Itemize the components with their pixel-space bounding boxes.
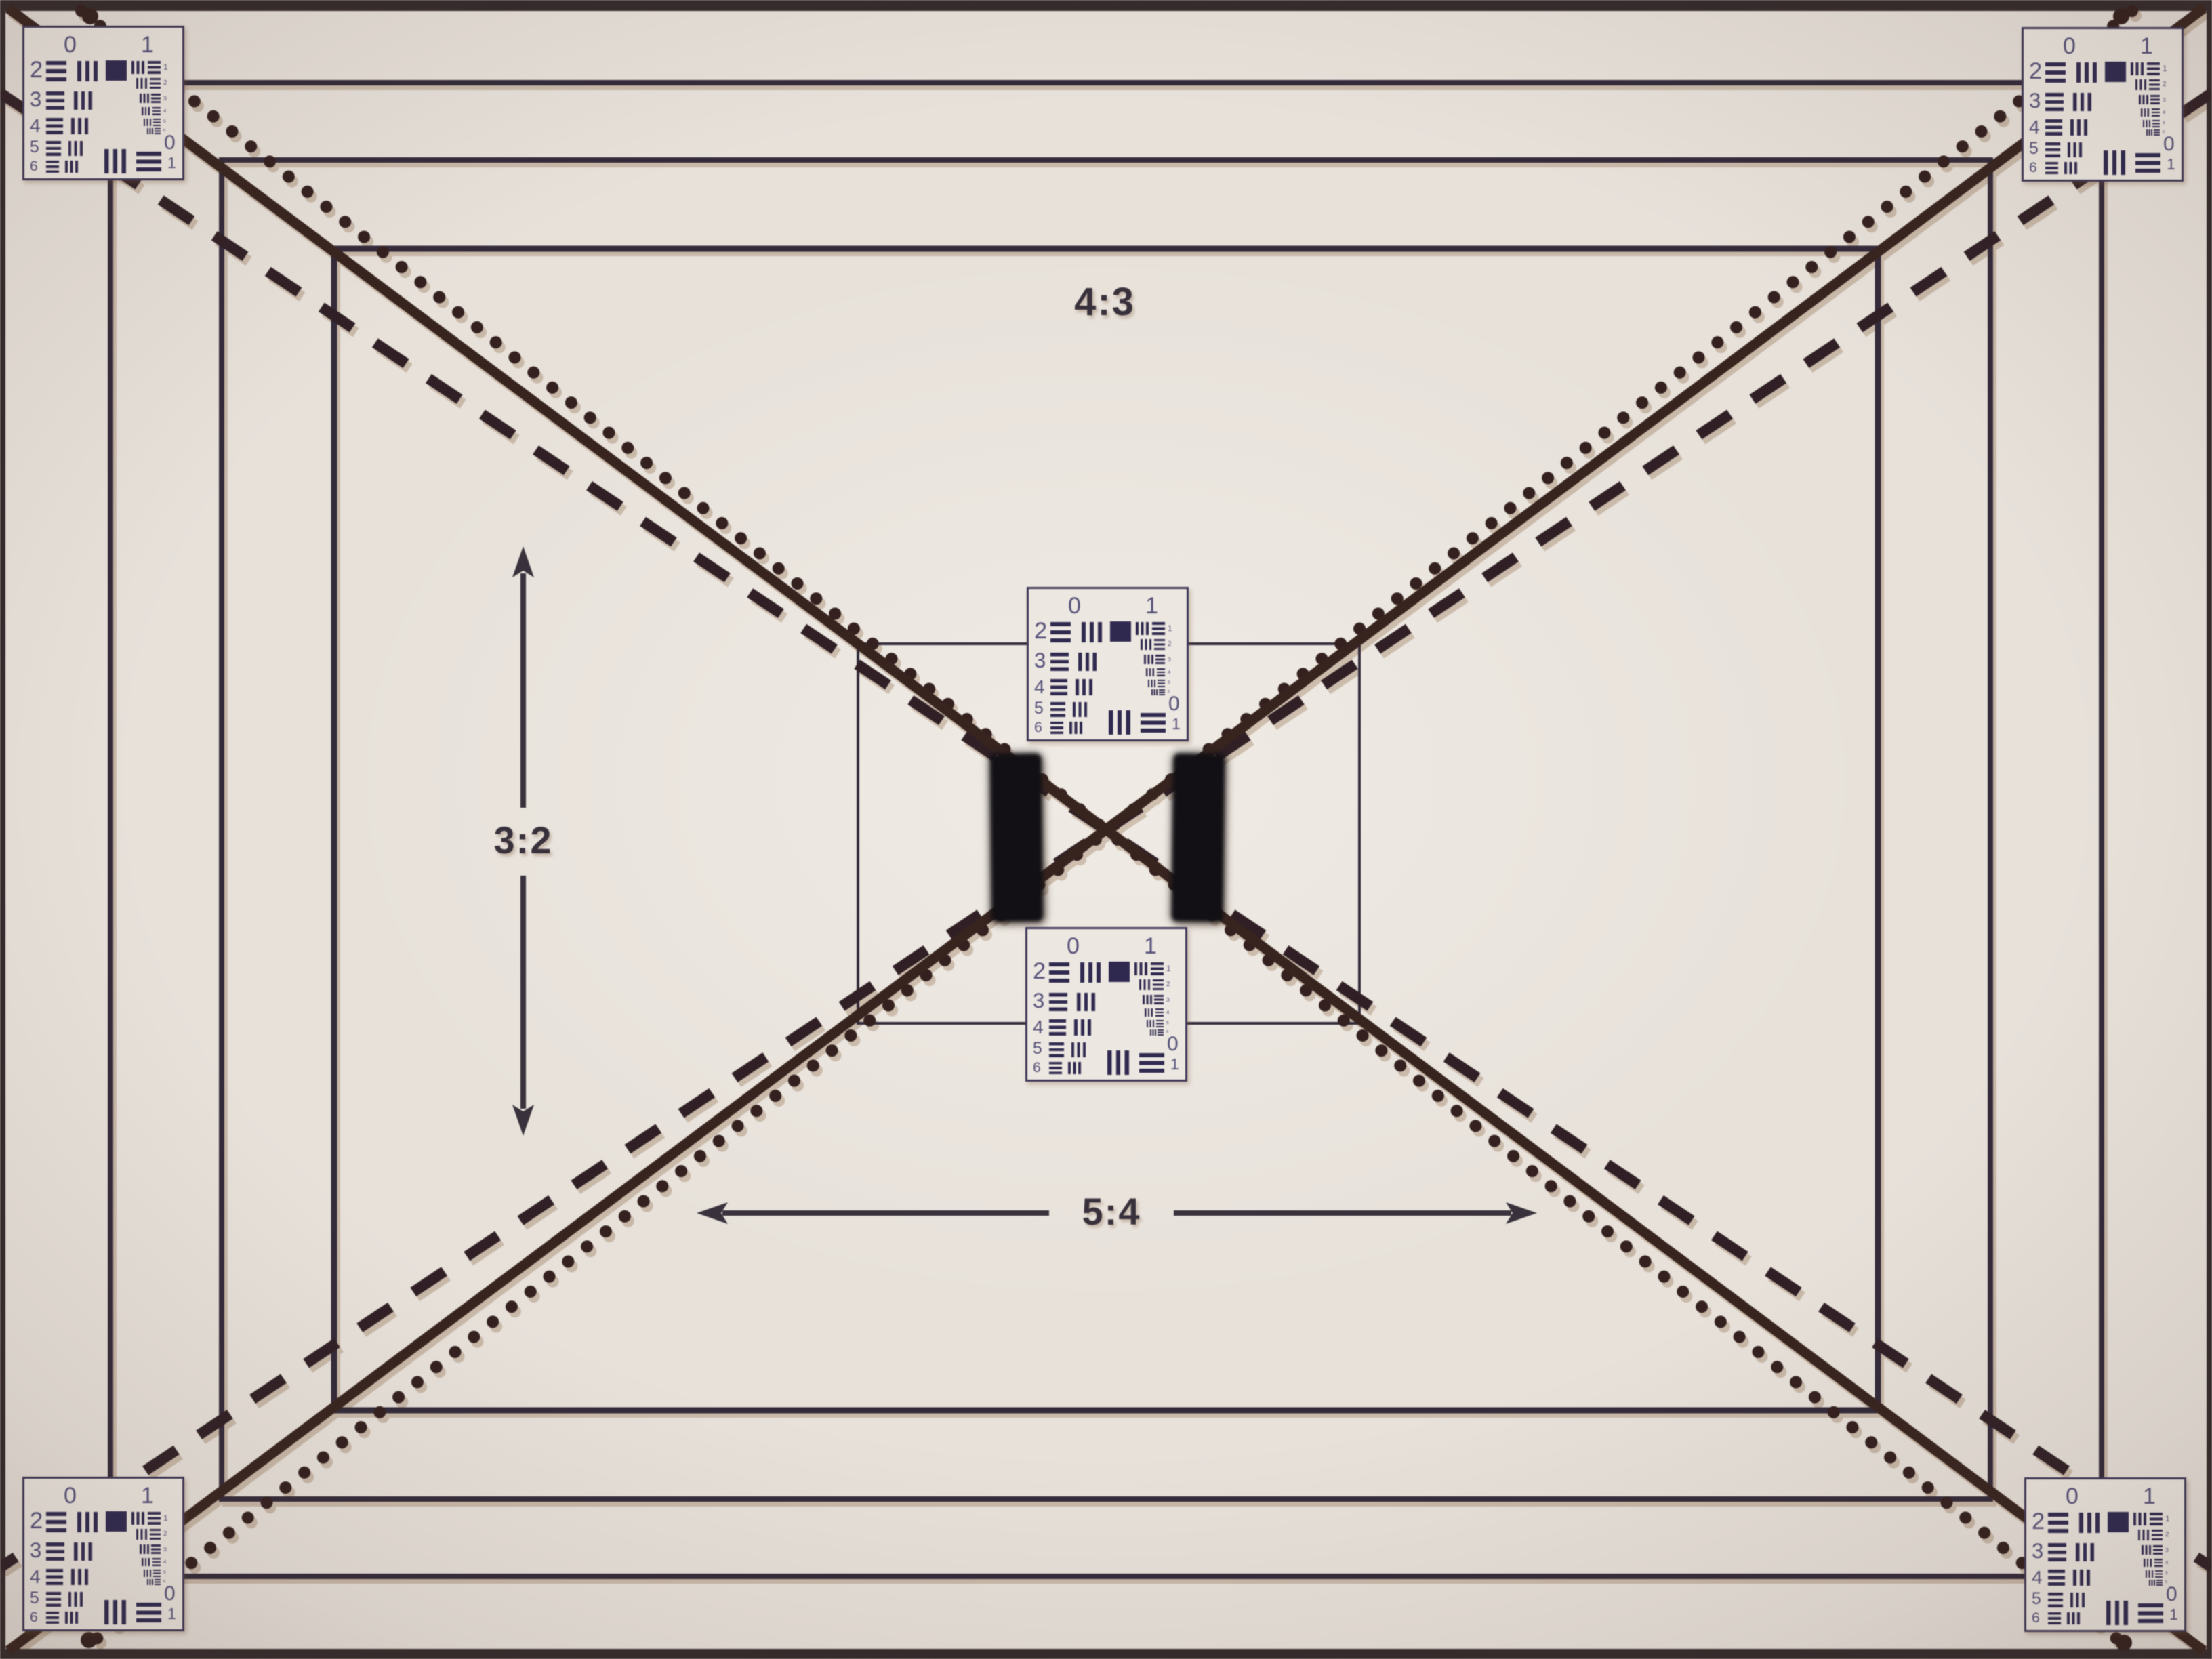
mini-hbars	[153, 1570, 161, 1577]
hbars-row-5	[2045, 142, 2060, 157]
vbars-row-4	[1076, 679, 1092, 696]
mini-label: 4	[1166, 1010, 1169, 1015]
bottom-label-zero: 0	[164, 133, 176, 153]
row-label: 6	[1034, 720, 1042, 735]
vbars-row-6	[2064, 162, 2077, 175]
hbars-row-4	[2048, 1570, 2065, 1586]
group-label-zero: 0	[64, 1484, 77, 1507]
mini-label: 3	[2165, 1547, 2169, 1553]
mini-hbars	[2152, 1530, 2163, 1540]
vbars-row-3	[74, 1542, 92, 1561]
bottom-label-zero: 0	[164, 1584, 176, 1604]
mini-hbars	[2155, 1570, 2163, 1578]
hbars-row-5	[2048, 1593, 2063, 1607]
mini-label: 2	[2163, 81, 2167, 88]
group-label-zero: 0	[1067, 935, 1080, 958]
vbars-row-5	[2068, 142, 2083, 157]
mini-vbars	[1134, 962, 1147, 975]
mini-hbars	[2152, 120, 2160, 127]
vbars-row-6	[1068, 1062, 1081, 1075]
hbars-row-4	[1049, 1019, 1066, 1036]
vbars-row-4	[71, 118, 88, 135]
mini-hbars	[1155, 1008, 1164, 1017]
row-label: 2	[2029, 60, 2042, 83]
bottom-label-zero: 0	[2163, 134, 2175, 155]
mini-hbars	[1158, 680, 1165, 687]
mini-label: 1	[2165, 1515, 2170, 1523]
vbars-row-3	[2076, 1543, 2094, 1561]
mini-label: 3	[163, 1547, 167, 1553]
mini-label: 5	[163, 1571, 166, 1576]
hbars-row-6	[1049, 1062, 1062, 1075]
velcro-pad-right	[1171, 754, 1225, 922]
group-label-one: 1	[141, 1484, 154, 1507]
group-label-zero: 0	[1068, 594, 1081, 617]
vbars-row-5	[1073, 702, 1088, 717]
group-label-zero: 0	[2066, 1485, 2078, 1508]
vbars-row-2	[77, 1512, 98, 1532]
bottom-vbars	[104, 1600, 126, 1624]
mini-vbars	[1141, 639, 1151, 650]
row-label: 6	[2029, 161, 2037, 175]
vbars-row-5	[68, 1592, 83, 1607]
mini-hbars	[1153, 979, 1164, 990]
mini-hbars	[150, 1529, 161, 1540]
bottom-hbars	[2135, 153, 2160, 173]
bottom-hbars	[1141, 713, 1166, 733]
row-label: 3	[30, 89, 41, 110]
row-label: 5	[2032, 1591, 2041, 1608]
mini-vbars	[2146, 1570, 2153, 1578]
hbars-row-3	[1049, 993, 1067, 1011]
group-label-zero: 0	[2063, 35, 2076, 58]
hbars-row-6	[46, 161, 59, 173]
mini-vbars	[2144, 1559, 2152, 1568]
mini-vbars	[136, 78, 147, 89]
bottom-hbars	[1139, 1053, 1164, 1073]
bottom-label-one: 1	[2169, 1607, 2178, 1622]
bottom-label-one: 1	[167, 1606, 176, 1622]
mini-label: 2	[163, 1531, 167, 1538]
mini-label: 2	[2165, 1532, 2169, 1538]
border-band-top	[0, 0, 2212, 11]
mini-hbars	[2154, 1559, 2163, 1568]
mini-hbars	[151, 1544, 161, 1554]
mini-label: 4	[163, 1559, 166, 1565]
row-label: 3	[2032, 1540, 2043, 1561]
border-band-bottom	[0, 1649, 2212, 1659]
vbars-row-5	[68, 141, 83, 156]
bottom-hbars	[2138, 1603, 2163, 1623]
mini-label: 5	[2163, 121, 2165, 126]
row-label: 2	[1033, 960, 1046, 983]
bottom-vbars	[1107, 1050, 1129, 1075]
vbars-row-3	[74, 91, 92, 110]
bottom-vbars	[2104, 150, 2125, 175]
vbars-row-6	[1069, 722, 1082, 735]
vbars-row-6	[2067, 1612, 2080, 1625]
start-square	[1110, 621, 1131, 642]
chart-artwork: 0123456123456010123456123456010123456123…	[0, 0, 2212, 1659]
row-label: 5	[1034, 701, 1044, 718]
group-label-one: 1	[2140, 35, 2153, 58]
mini-label: 3	[1166, 997, 1170, 1003]
vbars-row-3	[1077, 993, 1095, 1011]
mini-vbars	[2149, 1580, 2155, 1586]
lens-test-chart: 0123456123456010123456123456010123456123…	[0, 0, 2212, 1659]
mini-vbars	[2133, 1513, 2146, 1525]
row-label: 6	[1033, 1061, 1041, 1075]
mini-hbars	[1155, 655, 1165, 664]
mini-label: 1	[163, 1515, 168, 1523]
aspect-label-4-3: 4:3	[1074, 279, 1135, 325]
mini-hbars	[2156, 1580, 2163, 1586]
usaf-target-center-bottom: 012345612345601	[1025, 927, 1187, 1082]
start-square	[2108, 1512, 2129, 1532]
vbars-row-6	[65, 161, 78, 173]
hbars-row-6	[2045, 162, 2058, 175]
mini-vbars	[142, 1558, 150, 1567]
mini-hbars	[148, 1512, 161, 1525]
mini-vbars	[2131, 62, 2144, 75]
row-label: 4	[30, 1567, 41, 1586]
mini-vbars	[2135, 79, 2146, 90]
vbars-row-5	[1071, 1042, 1086, 1057]
row-label: 2	[30, 58, 43, 82]
bottom-label-zero: 0	[2166, 1584, 2177, 1605]
mini-label: 3	[2163, 97, 2166, 103]
hbars-row-3	[2048, 1543, 2066, 1561]
mini-hbars	[151, 94, 161, 103]
row-label: 2	[2032, 1510, 2045, 1534]
mini-label: 4	[163, 108, 166, 114]
hbars-row-2	[1050, 622, 1071, 642]
mini-label: 3	[1168, 657, 1171, 663]
mini-hbars	[155, 128, 161, 134]
mini-vbars	[1150, 1029, 1156, 1036]
mini-vbars	[140, 1544, 149, 1554]
mini-hbars	[2150, 95, 2160, 104]
mini-label: 5	[2165, 1572, 2168, 1576]
mini-hbars	[1154, 639, 1165, 650]
bottom-vbars	[1109, 710, 1130, 735]
hbars-row-5	[46, 141, 61, 156]
row-label: 4	[1034, 677, 1045, 696]
vbars-row-6	[65, 1612, 78, 1624]
hbars-row-2	[2045, 62, 2066, 83]
mini-vbars	[1146, 668, 1155, 677]
row-label: 3	[1033, 990, 1044, 1011]
group-label-one: 1	[1144, 935, 1157, 958]
mini-label: 1	[1166, 965, 1171, 973]
row-label: 5	[1033, 1041, 1042, 1058]
mini-hbars	[2149, 79, 2160, 90]
mini-vbars	[1147, 1020, 1154, 1027]
mini-hbars	[2150, 1513, 2163, 1525]
bottom-vbars	[104, 149, 126, 173]
row-label: 5	[30, 140, 39, 157]
mini-hbars	[2152, 108, 2160, 117]
mini-vbars	[1148, 680, 1155, 687]
hbars-row-4	[46, 1569, 63, 1586]
chart-lines	[0, 0, 2212, 1659]
row-label: 4	[2032, 1568, 2043, 1586]
vbars-row-4	[2070, 119, 2087, 136]
usaf-target-top-right: 012345612345601	[2022, 27, 2184, 182]
vbars-row-2	[2076, 62, 2097, 83]
hbars-row-2	[1049, 962, 1069, 983]
vbars-row-4	[2073, 1570, 2090, 1586]
mini-hbars	[1158, 1029, 1164, 1036]
mini-hbars	[2153, 1545, 2163, 1555]
group-label-one: 1	[2143, 1485, 2156, 1508]
hbars-row-6	[2048, 1612, 2061, 1625]
bottom-hbars	[136, 1603, 161, 1622]
mini-hbars	[148, 61, 161, 74]
usaf-target-center-top: 012345612345601	[1027, 587, 1189, 741]
row-label: 3	[1034, 650, 1046, 671]
hbars-row-4	[2045, 119, 2062, 136]
hbars-row-6	[1050, 722, 1063, 735]
mini-vbars	[147, 128, 153, 134]
mini-label: 1	[1168, 625, 1172, 633]
bottom-hbars	[136, 152, 161, 171]
mini-vbars	[142, 107, 150, 116]
group-label-zero: 0	[64, 33, 77, 56]
hbars-row-2	[46, 1512, 66, 1532]
mini-hbars	[152, 107, 161, 116]
mini-vbars	[1143, 995, 1152, 1004]
hbars-row-2	[2048, 1513, 2068, 1533]
hbars-row-5	[1050, 702, 1065, 717]
aspect-label-5-4: 5:4	[1082, 1189, 1141, 1233]
mini-hbars	[155, 1579, 161, 1585]
mini-label: 3	[163, 96, 167, 102]
mini-hbars	[1151, 962, 1164, 975]
mini-vbars	[2141, 108, 2150, 117]
vbars-row-5	[2070, 1593, 2085, 1607]
mini-label: 4	[2165, 1560, 2168, 1565]
vbars-row-3	[2073, 93, 2091, 111]
mini-vbars	[1145, 1008, 1153, 1017]
mini-label: 1	[163, 64, 168, 72]
mini-hbars	[2147, 62, 2160, 75]
mini-label: 5	[1166, 1021, 1169, 1026]
mini-label: 4	[2163, 110, 2165, 115]
mini-label: 5	[1168, 681, 1170, 686]
hbars-row-4	[1050, 679, 1067, 696]
mini-vbars	[2138, 1530, 2149, 1540]
mini-hbars	[1154, 995, 1164, 1004]
row-label: 6	[2032, 1611, 2040, 1625]
hbars-row-3	[1050, 653, 1069, 671]
mini-hbars	[152, 1558, 161, 1567]
vbars-row-2	[2079, 1513, 2100, 1533]
mini-vbars	[131, 61, 144, 74]
usaf-target-bottom-left: 012345612345601	[22, 1477, 184, 1631]
mini-vbars	[1139, 979, 1150, 990]
mini-vbars	[147, 1579, 153, 1585]
mini-label: 2	[1166, 981, 1170, 988]
mini-vbars	[131, 1512, 144, 1525]
border-band-right	[2207, 0, 2212, 1659]
start-square	[2105, 62, 2126, 82]
hbars-row-3	[46, 91, 64, 110]
mini-vbars	[2146, 129, 2152, 136]
mini-label: 1	[2163, 65, 2167, 73]
row-label: 4	[2029, 117, 2040, 136]
bottom-label-zero: 0	[1167, 1034, 1179, 1054]
mini-vbars	[144, 119, 151, 126]
bottom-vbars	[2106, 1601, 2128, 1625]
row-label: 2	[1034, 619, 1047, 643]
mini-vbars	[136, 1529, 147, 1540]
mini-label: 2	[163, 80, 167, 87]
row-label: 4	[30, 116, 41, 135]
hbars-row-2	[46, 61, 66, 81]
aspect-label-3-2: 3:2	[494, 818, 553, 862]
start-square	[106, 1511, 127, 1532]
usaf-target-bottom-right: 012345612345601	[2024, 1477, 2186, 1632]
bottom-label-one: 1	[167, 155, 176, 171]
mini-hbars	[150, 78, 161, 89]
row-label: 3	[2029, 90, 2041, 111]
group-label-one: 1	[1145, 594, 1158, 617]
bottom-label-one: 1	[1172, 716, 1181, 732]
bottom-label-one: 1	[1170, 1057, 1179, 1072]
hbars-row-5	[46, 1592, 61, 1607]
bottom-label-one: 1	[2167, 157, 2175, 172]
mini-hbars	[153, 119, 161, 126]
vbars-row-4	[71, 1569, 88, 1586]
usaf-target-top-left: 012345612345601	[22, 26, 184, 180]
start-square	[1109, 962, 1130, 982]
hbars-row-6	[46, 1612, 59, 1624]
mini-label: 5	[163, 120, 166, 125]
row-label: 6	[30, 1610, 38, 1624]
mini-hbars	[2154, 129, 2160, 136]
vbars-row-2	[77, 61, 98, 81]
border-band-left	[0, 0, 5, 1659]
row-label: 2	[30, 1509, 43, 1533]
row-label: 6	[30, 159, 38, 173]
mini-vbars	[2142, 1545, 2151, 1555]
mini-vbars	[1144, 655, 1153, 664]
vbars-row-4	[1074, 1019, 1091, 1036]
start-square	[106, 60, 127, 81]
group-label-one: 1	[141, 33, 154, 56]
mini-vbars	[1136, 622, 1149, 635]
hbars-row-4	[46, 118, 63, 135]
mini-hbars	[1152, 622, 1165, 635]
mini-vbars	[1151, 689, 1158, 695]
mini-label: 4	[1168, 670, 1170, 675]
mini-hbars	[1157, 668, 1166, 677]
mini-hbars	[1156, 1020, 1164, 1027]
row-label: 4	[1033, 1017, 1044, 1036]
mini-vbars	[144, 1570, 151, 1577]
mini-vbars	[2139, 95, 2148, 104]
velcro-pad-left	[990, 754, 1044, 922]
vbars-row-2	[1080, 962, 1101, 983]
hbars-row-3	[46, 1542, 64, 1561]
vbars-row-3	[1078, 653, 1097, 671]
mini-vbars	[140, 94, 149, 103]
row-label: 3	[30, 1540, 41, 1561]
row-label: 5	[2029, 141, 2039, 158]
hbars-row-3	[2045, 93, 2064, 111]
vbars-row-2	[1082, 622, 1102, 642]
row-label: 5	[30, 1591, 39, 1607]
mini-hbars	[1159, 689, 1165, 695]
mini-label: 2	[1168, 641, 1172, 648]
hbars-row-5	[1049, 1042, 1064, 1057]
bottom-label-zero: 0	[1168, 694, 1180, 714]
mini-vbars	[2143, 120, 2150, 127]
